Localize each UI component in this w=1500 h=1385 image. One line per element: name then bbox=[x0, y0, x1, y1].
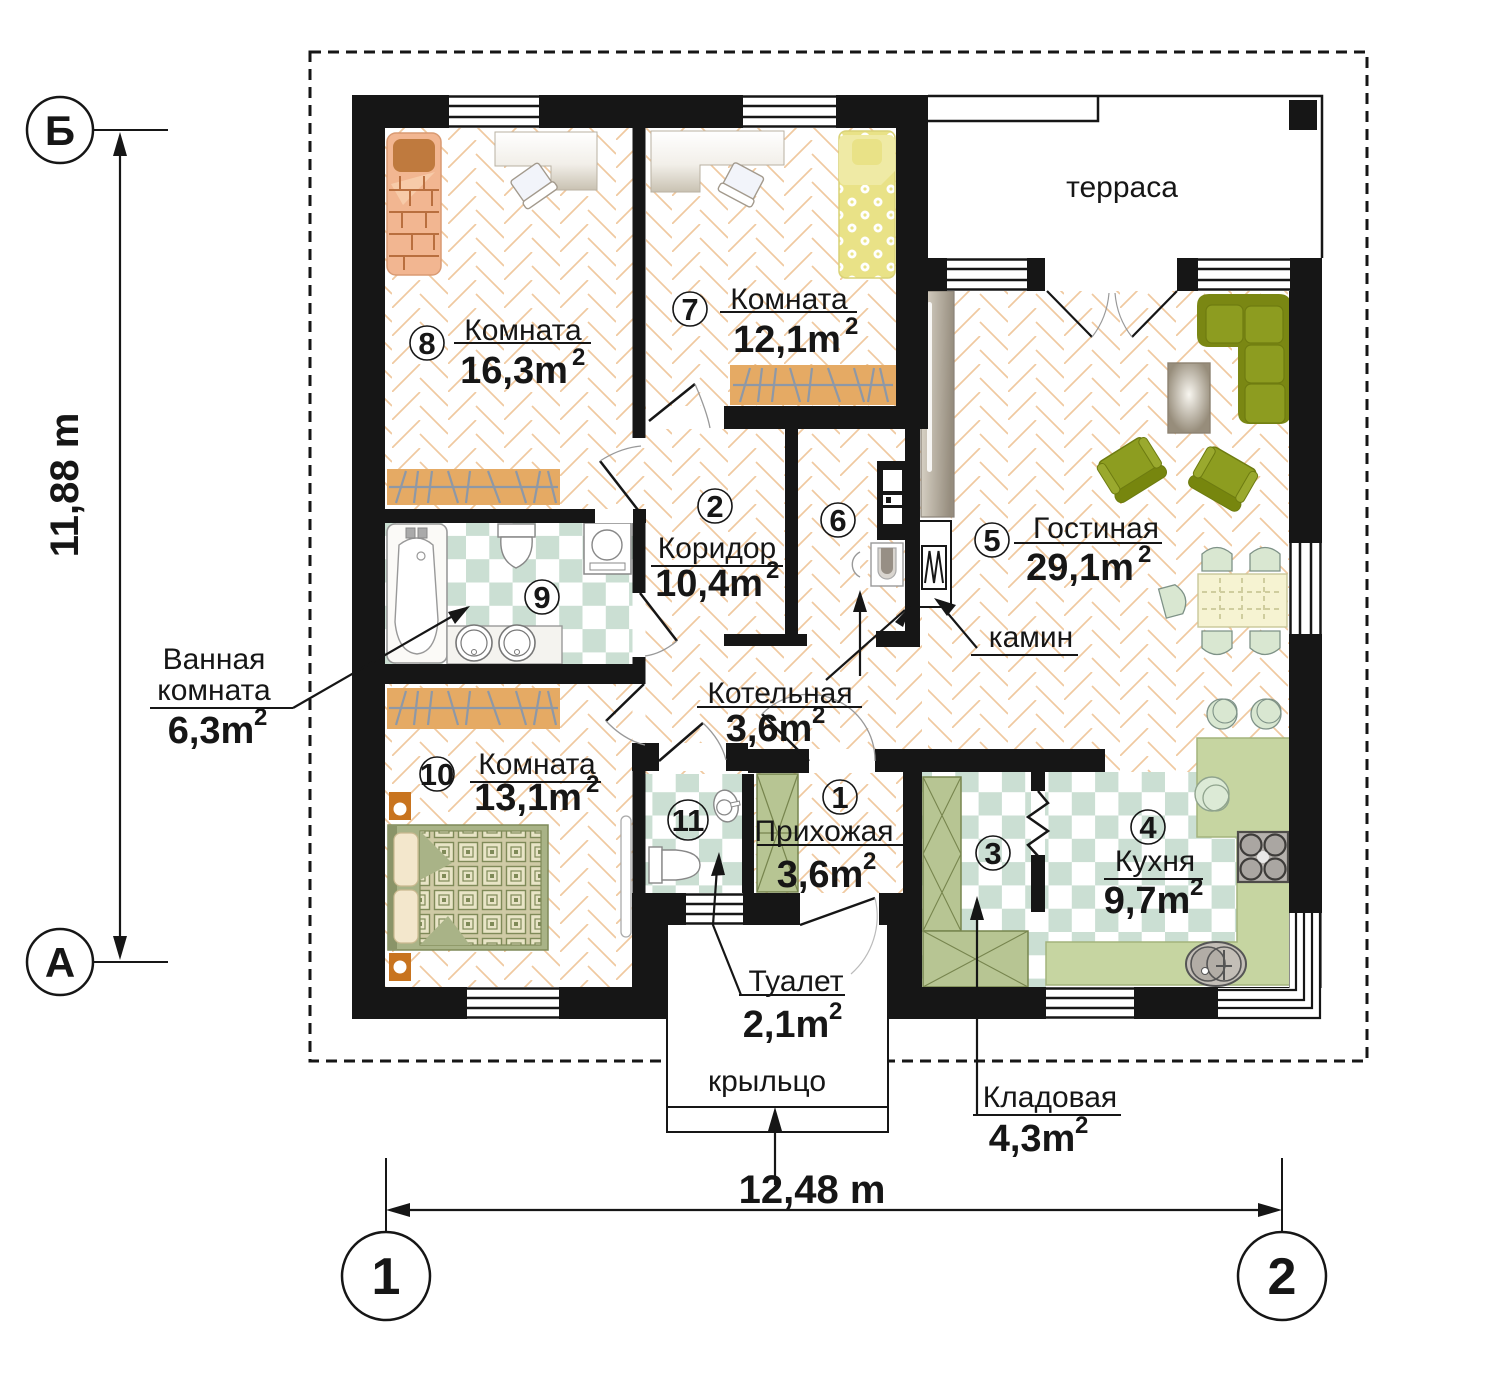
svg-text:терраса: терраса bbox=[1066, 171, 1178, 204]
svg-text:3: 3 bbox=[984, 836, 1001, 871]
svg-text:4,3m: 4,3m bbox=[989, 1118, 1076, 1160]
svg-text:3,6m: 3,6m bbox=[726, 708, 813, 750]
svg-text:2: 2 bbox=[572, 344, 585, 371]
svg-text:2: 2 bbox=[812, 702, 825, 729]
svg-text:комната: комната bbox=[157, 674, 271, 707]
svg-text:10: 10 bbox=[420, 757, 454, 792]
svg-text:Коридор: Коридор bbox=[658, 532, 776, 565]
svg-text:2: 2 bbox=[845, 313, 858, 340]
svg-text:29,1m: 29,1m bbox=[1026, 547, 1134, 589]
svg-text:9: 9 bbox=[533, 580, 550, 615]
svg-text:9,7m: 9,7m bbox=[1104, 880, 1191, 922]
svg-text:6: 6 bbox=[829, 503, 846, 538]
svg-text:Кладовая: Кладовая bbox=[983, 1081, 1117, 1114]
svg-text:11,88 m: 11,88 m bbox=[43, 413, 87, 558]
svg-text:2: 2 bbox=[706, 489, 723, 524]
svg-text:2: 2 bbox=[586, 771, 599, 798]
svg-text:2: 2 bbox=[1138, 541, 1151, 568]
svg-text:4: 4 bbox=[1139, 810, 1157, 845]
svg-text:13,1m: 13,1m bbox=[474, 777, 582, 819]
svg-text:2: 2 bbox=[1075, 1112, 1088, 1139]
svg-text:6,3m: 6,3m bbox=[168, 710, 255, 752]
svg-text:3,6m: 3,6m bbox=[777, 854, 864, 896]
svg-text:Кухня: Кухня bbox=[1115, 845, 1195, 878]
svg-text:7: 7 bbox=[681, 292, 698, 327]
svg-text:2: 2 bbox=[863, 848, 876, 875]
svg-text:12,1m: 12,1m bbox=[733, 319, 841, 361]
svg-text:2: 2 bbox=[829, 998, 842, 1025]
svg-text:8: 8 bbox=[418, 326, 435, 361]
svg-text:1: 1 bbox=[372, 1248, 401, 1306]
svg-text:2: 2 bbox=[1190, 874, 1203, 901]
svg-text:камин: камин bbox=[989, 621, 1073, 654]
svg-text:Прихожая: Прихожая bbox=[754, 815, 893, 848]
svg-text:Туалет: Туалет bbox=[749, 965, 844, 998]
svg-text:1: 1 bbox=[831, 780, 848, 815]
svg-text:А: А bbox=[45, 939, 75, 986]
svg-text:16,3m: 16,3m bbox=[460, 350, 568, 392]
svg-text:крыльцо: крыльцо bbox=[708, 1065, 826, 1098]
svg-text:2: 2 bbox=[1268, 1248, 1297, 1306]
svg-text:2: 2 bbox=[766, 557, 779, 584]
svg-text:Б: Б bbox=[45, 107, 75, 154]
svg-text:5: 5 bbox=[983, 523, 1000, 558]
svg-text:Котельная: Котельная bbox=[707, 677, 852, 710]
svg-text:Ванная: Ванная bbox=[163, 643, 266, 676]
svg-text:2,1m: 2,1m bbox=[743, 1004, 830, 1046]
svg-text:12,48 m: 12,48 m bbox=[739, 1168, 886, 1212]
svg-text:11: 11 bbox=[672, 803, 705, 838]
svg-text:2: 2 bbox=[254, 704, 267, 731]
svg-text:10,4m: 10,4m bbox=[655, 563, 763, 605]
